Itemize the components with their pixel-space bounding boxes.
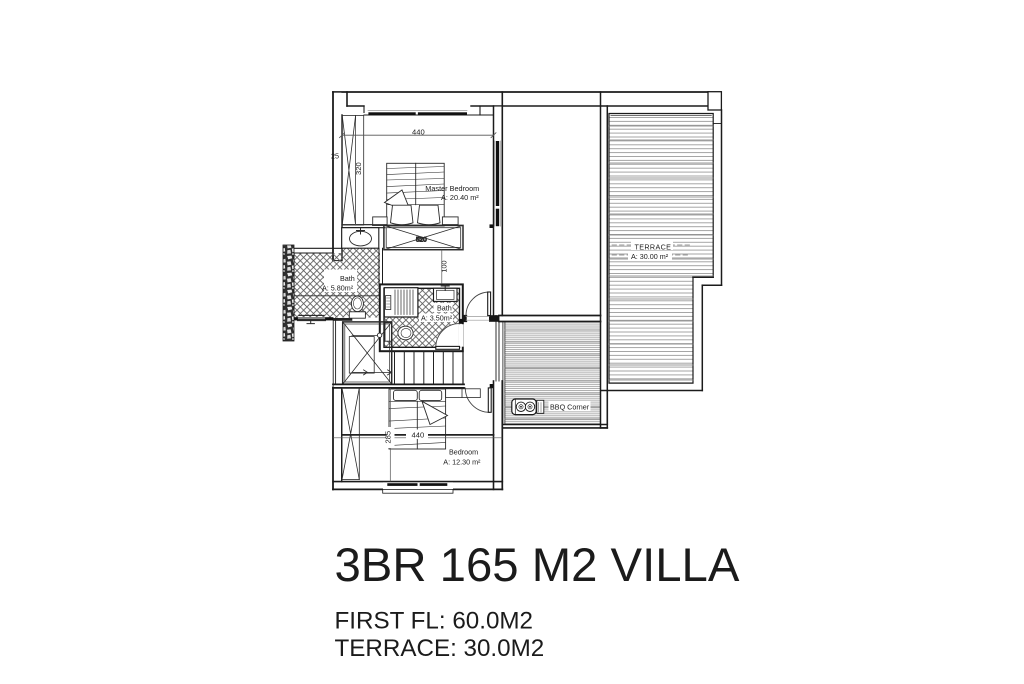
svg-text:285: 285 <box>384 431 393 444</box>
svg-text:Bedroom: Bedroom <box>449 447 478 456</box>
svg-text:520: 520 <box>416 236 427 243</box>
svg-text:A: 12.30 m²: A: 12.30 m² <box>443 457 481 466</box>
svg-text:Bath: Bath <box>340 274 355 283</box>
svg-text:Bath: Bath <box>437 304 452 313</box>
svg-text:Master Bedroom: Master Bedroom <box>425 184 479 193</box>
svg-text:A: 5.80m²: A: 5.80m² <box>322 283 354 292</box>
svg-text:TERRACE: TERRACE <box>635 243 672 252</box>
svg-text:A: 20.40 m²: A: 20.40 m² <box>441 193 479 202</box>
svg-text:320: 320 <box>354 162 363 175</box>
svg-text:440: 440 <box>412 430 425 439</box>
svg-text:FIRST FL: 60.0M2: FIRST FL: 60.0M2 <box>335 608 534 635</box>
svg-text:100: 100 <box>440 261 449 273</box>
svg-text:25: 25 <box>331 152 339 161</box>
svg-text:TERRACE: 30.0M2: TERRACE: 30.0M2 <box>335 635 545 662</box>
svg-text:A: 30.00 m²: A: 30.00 m² <box>631 252 669 261</box>
svg-text:BBQ Corner: BBQ Corner <box>550 402 590 411</box>
svg-text:3BR 165 M2 VILLA: 3BR 165 M2 VILLA <box>335 539 740 592</box>
svg-text:440: 440 <box>412 127 425 136</box>
svg-text:A: 3.50m²: A: 3.50m² <box>421 314 453 323</box>
